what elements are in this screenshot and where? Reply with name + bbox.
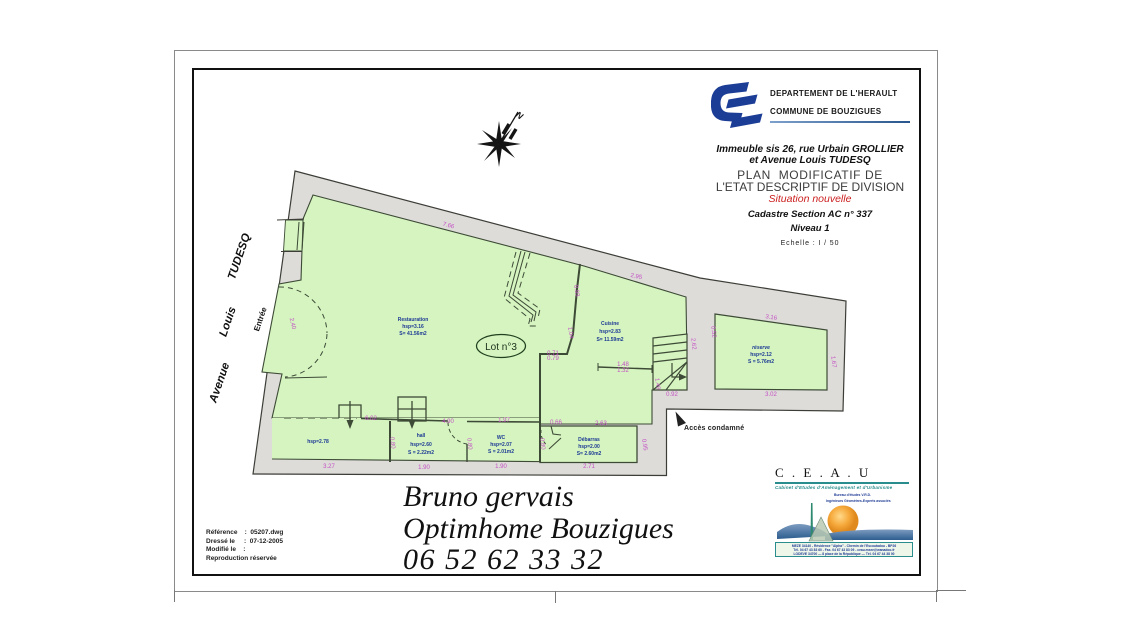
svg-text:hsp=2.83: hsp=2.83 <box>599 329 621 335</box>
svg-text:réserve: réserve <box>752 345 770 351</box>
svg-text:hsp=2.00: hsp=2.00 <box>578 444 600 450</box>
svg-text:Entrée: Entrée <box>252 305 269 332</box>
svg-text:S = 2.22m2: S = 2.22m2 <box>408 450 434 456</box>
svg-text:S= 11.59m2: S= 11.59m2 <box>596 337 623 343</box>
svg-text:3.02: 3.02 <box>765 392 777 398</box>
svg-text:hsp=2.60: hsp=2.60 <box>410 442 432 448</box>
svg-text:WC: WC <box>497 435 506 441</box>
svg-text:3.27: 3.27 <box>323 464 335 470</box>
svg-text:Louis: Louis <box>217 305 238 338</box>
svg-text:Restauration: Restauration <box>398 317 429 323</box>
svg-text:Lot n°3: Lot n°3 <box>485 342 517 353</box>
svg-text:0.92: 0.92 <box>666 392 678 398</box>
svg-text:1.90: 1.90 <box>495 464 507 470</box>
svg-text:hsp=2.78: hsp=2.78 <box>307 439 329 445</box>
svg-text:hsp=2.12: hsp=2.12 <box>750 352 772 358</box>
svg-text:2.71: 2.71 <box>583 464 595 470</box>
svg-text:0.79: 0.79 <box>547 356 559 362</box>
svg-text:1.97: 1.97 <box>498 418 510 424</box>
svg-text:4.90: 4.90 <box>442 419 454 425</box>
svg-text:S= 2.60m2: S= 2.60m2 <box>577 451 602 457</box>
svg-text:S = 2.01m2: S = 2.01m2 <box>488 449 514 455</box>
svg-text:TUDESQ: TUDESQ <box>226 232 253 281</box>
svg-text:0.66: 0.66 <box>550 420 562 426</box>
svg-text:S= 41.56m2: S= 41.56m2 <box>399 331 427 337</box>
svg-text:2.63: 2.63 <box>595 421 607 427</box>
svg-text:Avenue: Avenue <box>207 361 232 406</box>
svg-text:1.90: 1.90 <box>418 465 430 471</box>
svg-text:N: N <box>514 109 525 121</box>
svg-text:hsp=3.16: hsp=3.16 <box>402 324 424 330</box>
svg-text:hsp=2.07: hsp=2.07 <box>490 442 512 448</box>
svg-text:Débarras: Débarras <box>578 437 600 443</box>
svg-text:Cuisine: Cuisine <box>601 321 619 327</box>
svg-text:Accès condamné: Accès condamné <box>684 425 744 432</box>
svg-text:S = 5.76m2: S = 5.76m2 <box>748 359 774 365</box>
svg-text:6.02: 6.02 <box>365 416 377 422</box>
svg-text:hall: hall <box>417 433 426 439</box>
svg-text:1.32: 1.32 <box>617 368 629 374</box>
